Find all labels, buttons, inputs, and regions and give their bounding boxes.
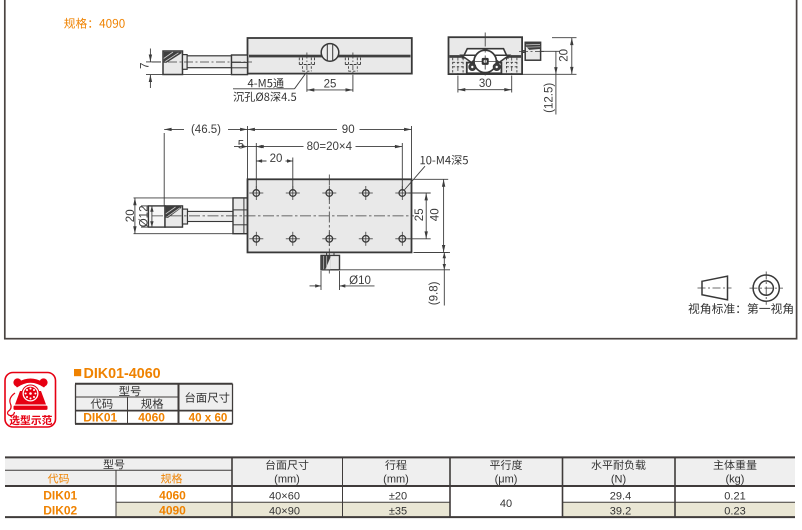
svg-text:20: 20 — [270, 153, 283, 165]
svg-text:90: 90 — [342, 124, 355, 136]
svg-text:40×60: 40×60 — [269, 490, 300, 502]
svg-text:Ø12: Ø12 — [139, 206, 151, 228]
svg-text:4060: 4060 — [138, 410, 165, 424]
svg-text:(mm): (mm) — [274, 473, 300, 485]
svg-text:25: 25 — [324, 79, 337, 91]
svg-text:30: 30 — [479, 78, 492, 90]
svg-text:40: 40 — [500, 498, 512, 510]
svg-text:4060: 4060 — [159, 488, 186, 502]
svg-text:40 x 60: 40 x 60 — [189, 411, 228, 424]
svg-text:80=20×4: 80=20×4 — [307, 141, 353, 153]
svg-text:0.23: 0.23 — [724, 505, 745, 517]
svg-text:0.21: 0.21 — [724, 490, 745, 502]
svg-text:DIK02: DIK02 — [43, 503, 77, 517]
svg-text:39.2: 39.2 — [610, 505, 631, 517]
svg-text:±35: ±35 — [389, 505, 407, 517]
svg-text:20: 20 — [559, 49, 571, 62]
svg-text:(46.5): (46.5) — [191, 124, 221, 136]
svg-text:(mm): (mm) — [383, 473, 409, 485]
svg-text:40: 40 — [429, 208, 441, 221]
svg-text:(12.5): (12.5) — [544, 83, 556, 113]
svg-text:(μm): (μm) — [495, 473, 518, 485]
svg-text:Ø10: Ø10 — [349, 275, 371, 287]
svg-text:7: 7 — [139, 63, 151, 69]
svg-text:(kg): (kg) — [726, 473, 745, 485]
svg-text:DIK01: DIK01 — [83, 410, 117, 424]
svg-text:20: 20 — [125, 209, 137, 222]
svg-text:(N): (N) — [611, 473, 626, 485]
svg-text:40×90: 40×90 — [269, 505, 300, 517]
svg-text:(9.8): (9.8) — [428, 281, 440, 305]
svg-text:25: 25 — [414, 208, 426, 221]
svg-text:±20: ±20 — [389, 490, 407, 502]
svg-text:4090: 4090 — [159, 503, 186, 517]
svg-text:DIK01-4060: DIK01-4060 — [84, 366, 161, 382]
svg-text:29.4: 29.4 — [610, 490, 631, 502]
svg-text:DIK01: DIK01 — [43, 488, 77, 502]
